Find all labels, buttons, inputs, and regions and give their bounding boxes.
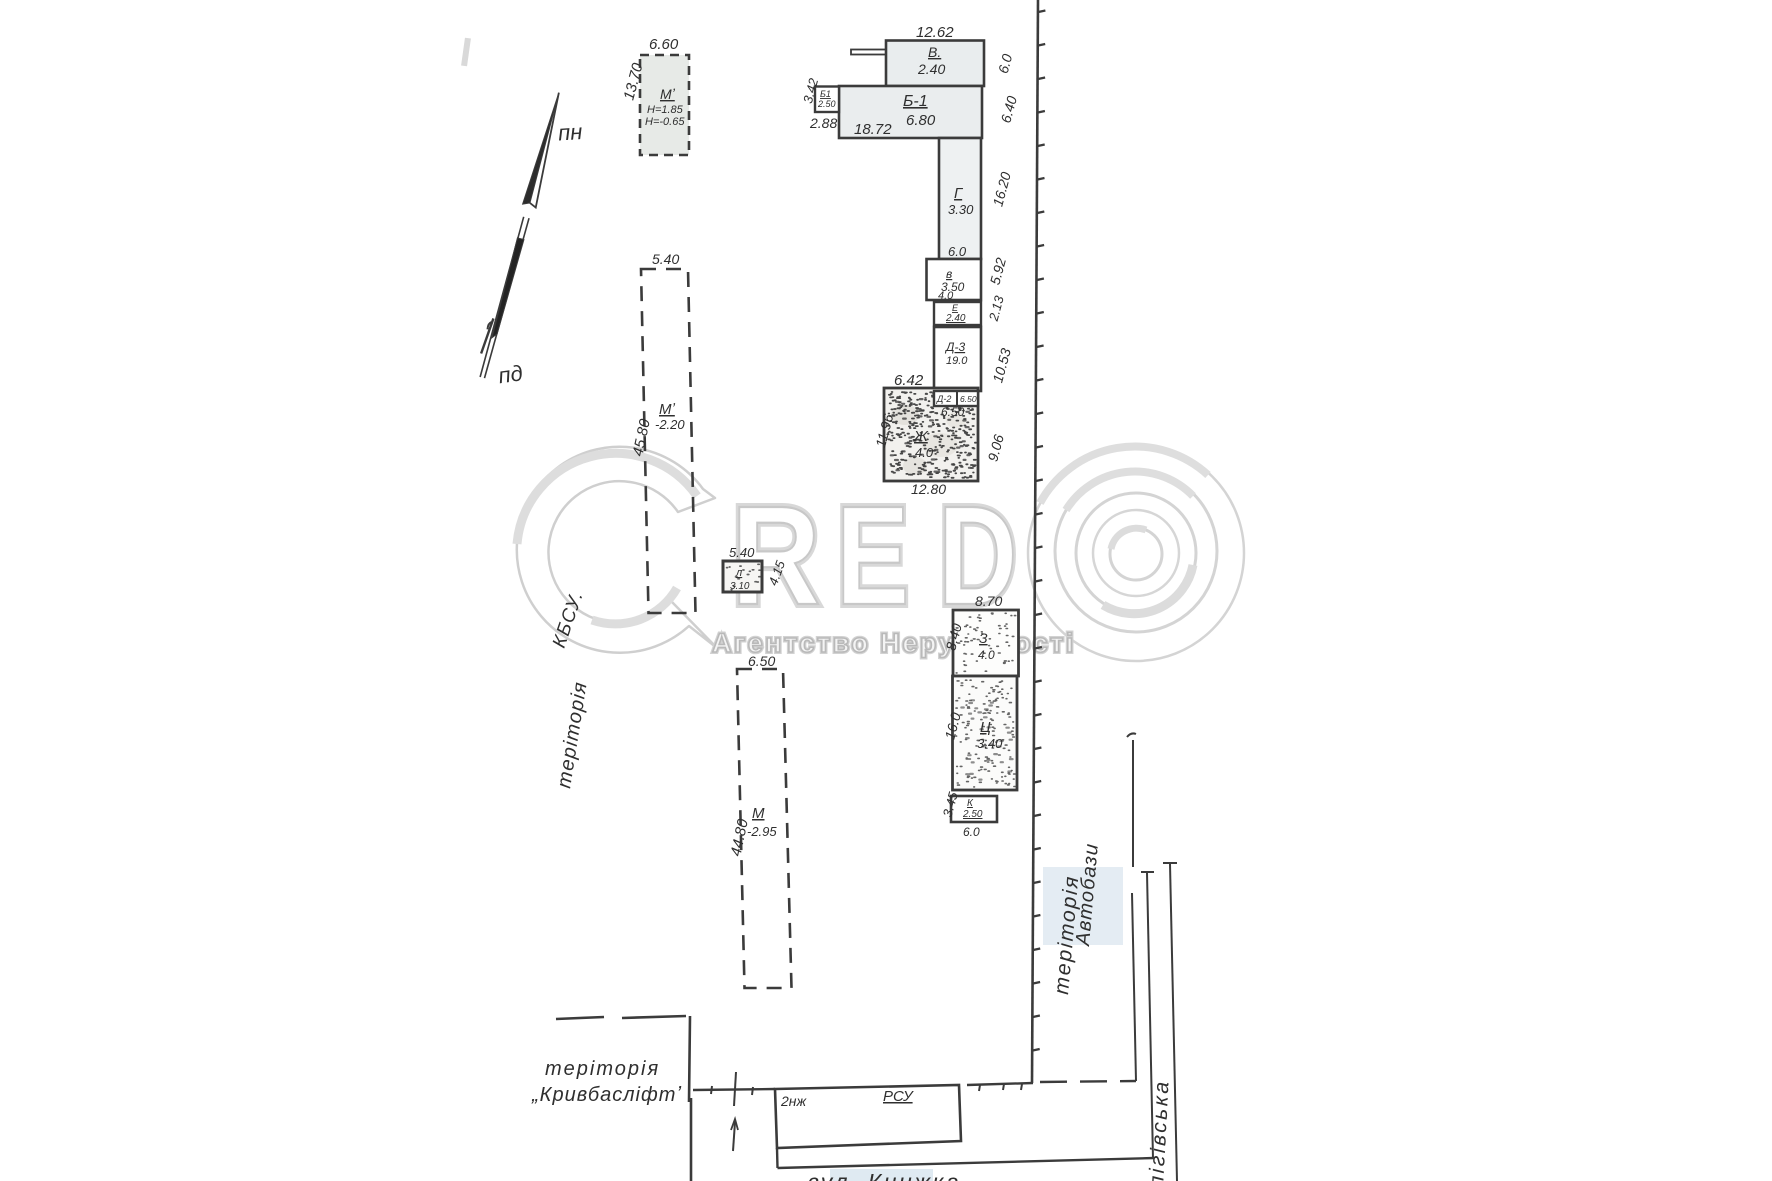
svg-text:РСУ: РСУ [883, 1088, 914, 1105]
svg-text:6.42: 6.42 [894, 372, 924, 389]
svg-text:6.50: 6.50 [748, 653, 775, 669]
svg-text:4.0: 4.0 [938, 290, 954, 302]
svg-text:8.70: 8.70 [975, 593, 1002, 609]
svg-text:Д-3: Д-3 [944, 340, 965, 354]
svg-text:2.50: 2.50 [817, 99, 836, 109]
svg-text:в: в [946, 267, 952, 281]
svg-text:3.10: 3.10 [730, 581, 750, 592]
svg-text:-2.20: -2.20 [655, 417, 685, 432]
svg-text:4.0: 4.0 [978, 648, 995, 662]
svg-text:19.0: 19.0 [946, 355, 968, 367]
svg-text:теріторія: теріторія [545, 1058, 660, 1080]
svg-text:12.80: 12.80 [911, 481, 946, 497]
svg-text:12.62: 12.62 [916, 24, 954, 41]
svg-text:2нж: 2нж [780, 1093, 807, 1109]
svg-text:Н=1.85: Н=1.85 [647, 104, 684, 116]
svg-text:пд: пд [497, 360, 525, 388]
svg-text:М: М [752, 805, 765, 822]
svg-text:вул. Книжка: вул. Книжка [807, 1169, 961, 1181]
svg-text:„Кривбасліфтʼ: „Кривбасліфтʼ [531, 1084, 682, 1106]
svg-text:6.50: 6.50 [960, 394, 977, 404]
svg-text:6.0: 6.0 [963, 825, 980, 839]
svg-text:5.40: 5.40 [729, 545, 755, 560]
svg-text:6.60: 6.60 [649, 36, 679, 53]
svg-text:E: E [836, 477, 909, 634]
svg-text:Ц: Ц [980, 719, 991, 736]
svg-text:6.50: 6.50 [941, 405, 965, 419]
svg-text:Мʼ: Мʼ [660, 86, 676, 102]
svg-text:Д-2: Д-2 [936, 394, 951, 404]
svg-text:2.40: 2.40 [917, 61, 945, 77]
svg-text:18.72: 18.72 [854, 121, 892, 138]
svg-text:Е: Е [952, 303, 959, 313]
svg-text:-2.95: -2.95 [747, 824, 777, 839]
svg-text:л: л [735, 567, 742, 579]
svg-text:пн: пн [557, 119, 583, 146]
svg-text:3.30: 3.30 [948, 202, 974, 217]
svg-text:З: З [979, 630, 988, 646]
svg-text:5.40: 5.40 [652, 251, 679, 267]
svg-text:2.88: 2.88 [809, 115, 837, 131]
svg-text:6.0: 6.0 [948, 244, 967, 259]
svg-text:2.40: 2.40 [945, 313, 966, 324]
svg-text:Мʼ: Мʼ [659, 401, 675, 418]
svg-text:4.0: 4.0 [915, 445, 934, 460]
svg-text:6.80: 6.80 [906, 112, 936, 129]
svg-text:Ж: Ж [913, 428, 929, 445]
svg-text:Б1: Б1 [820, 89, 831, 99]
svg-text:2.50: 2.50 [962, 809, 983, 820]
svg-text:Б-1: Б-1 [903, 93, 928, 110]
svg-text:3.40: 3.40 [977, 736, 1003, 751]
svg-text:Н=-0.65: Н=-0.65 [645, 116, 685, 128]
svg-text:В.: В. [928, 44, 941, 60]
